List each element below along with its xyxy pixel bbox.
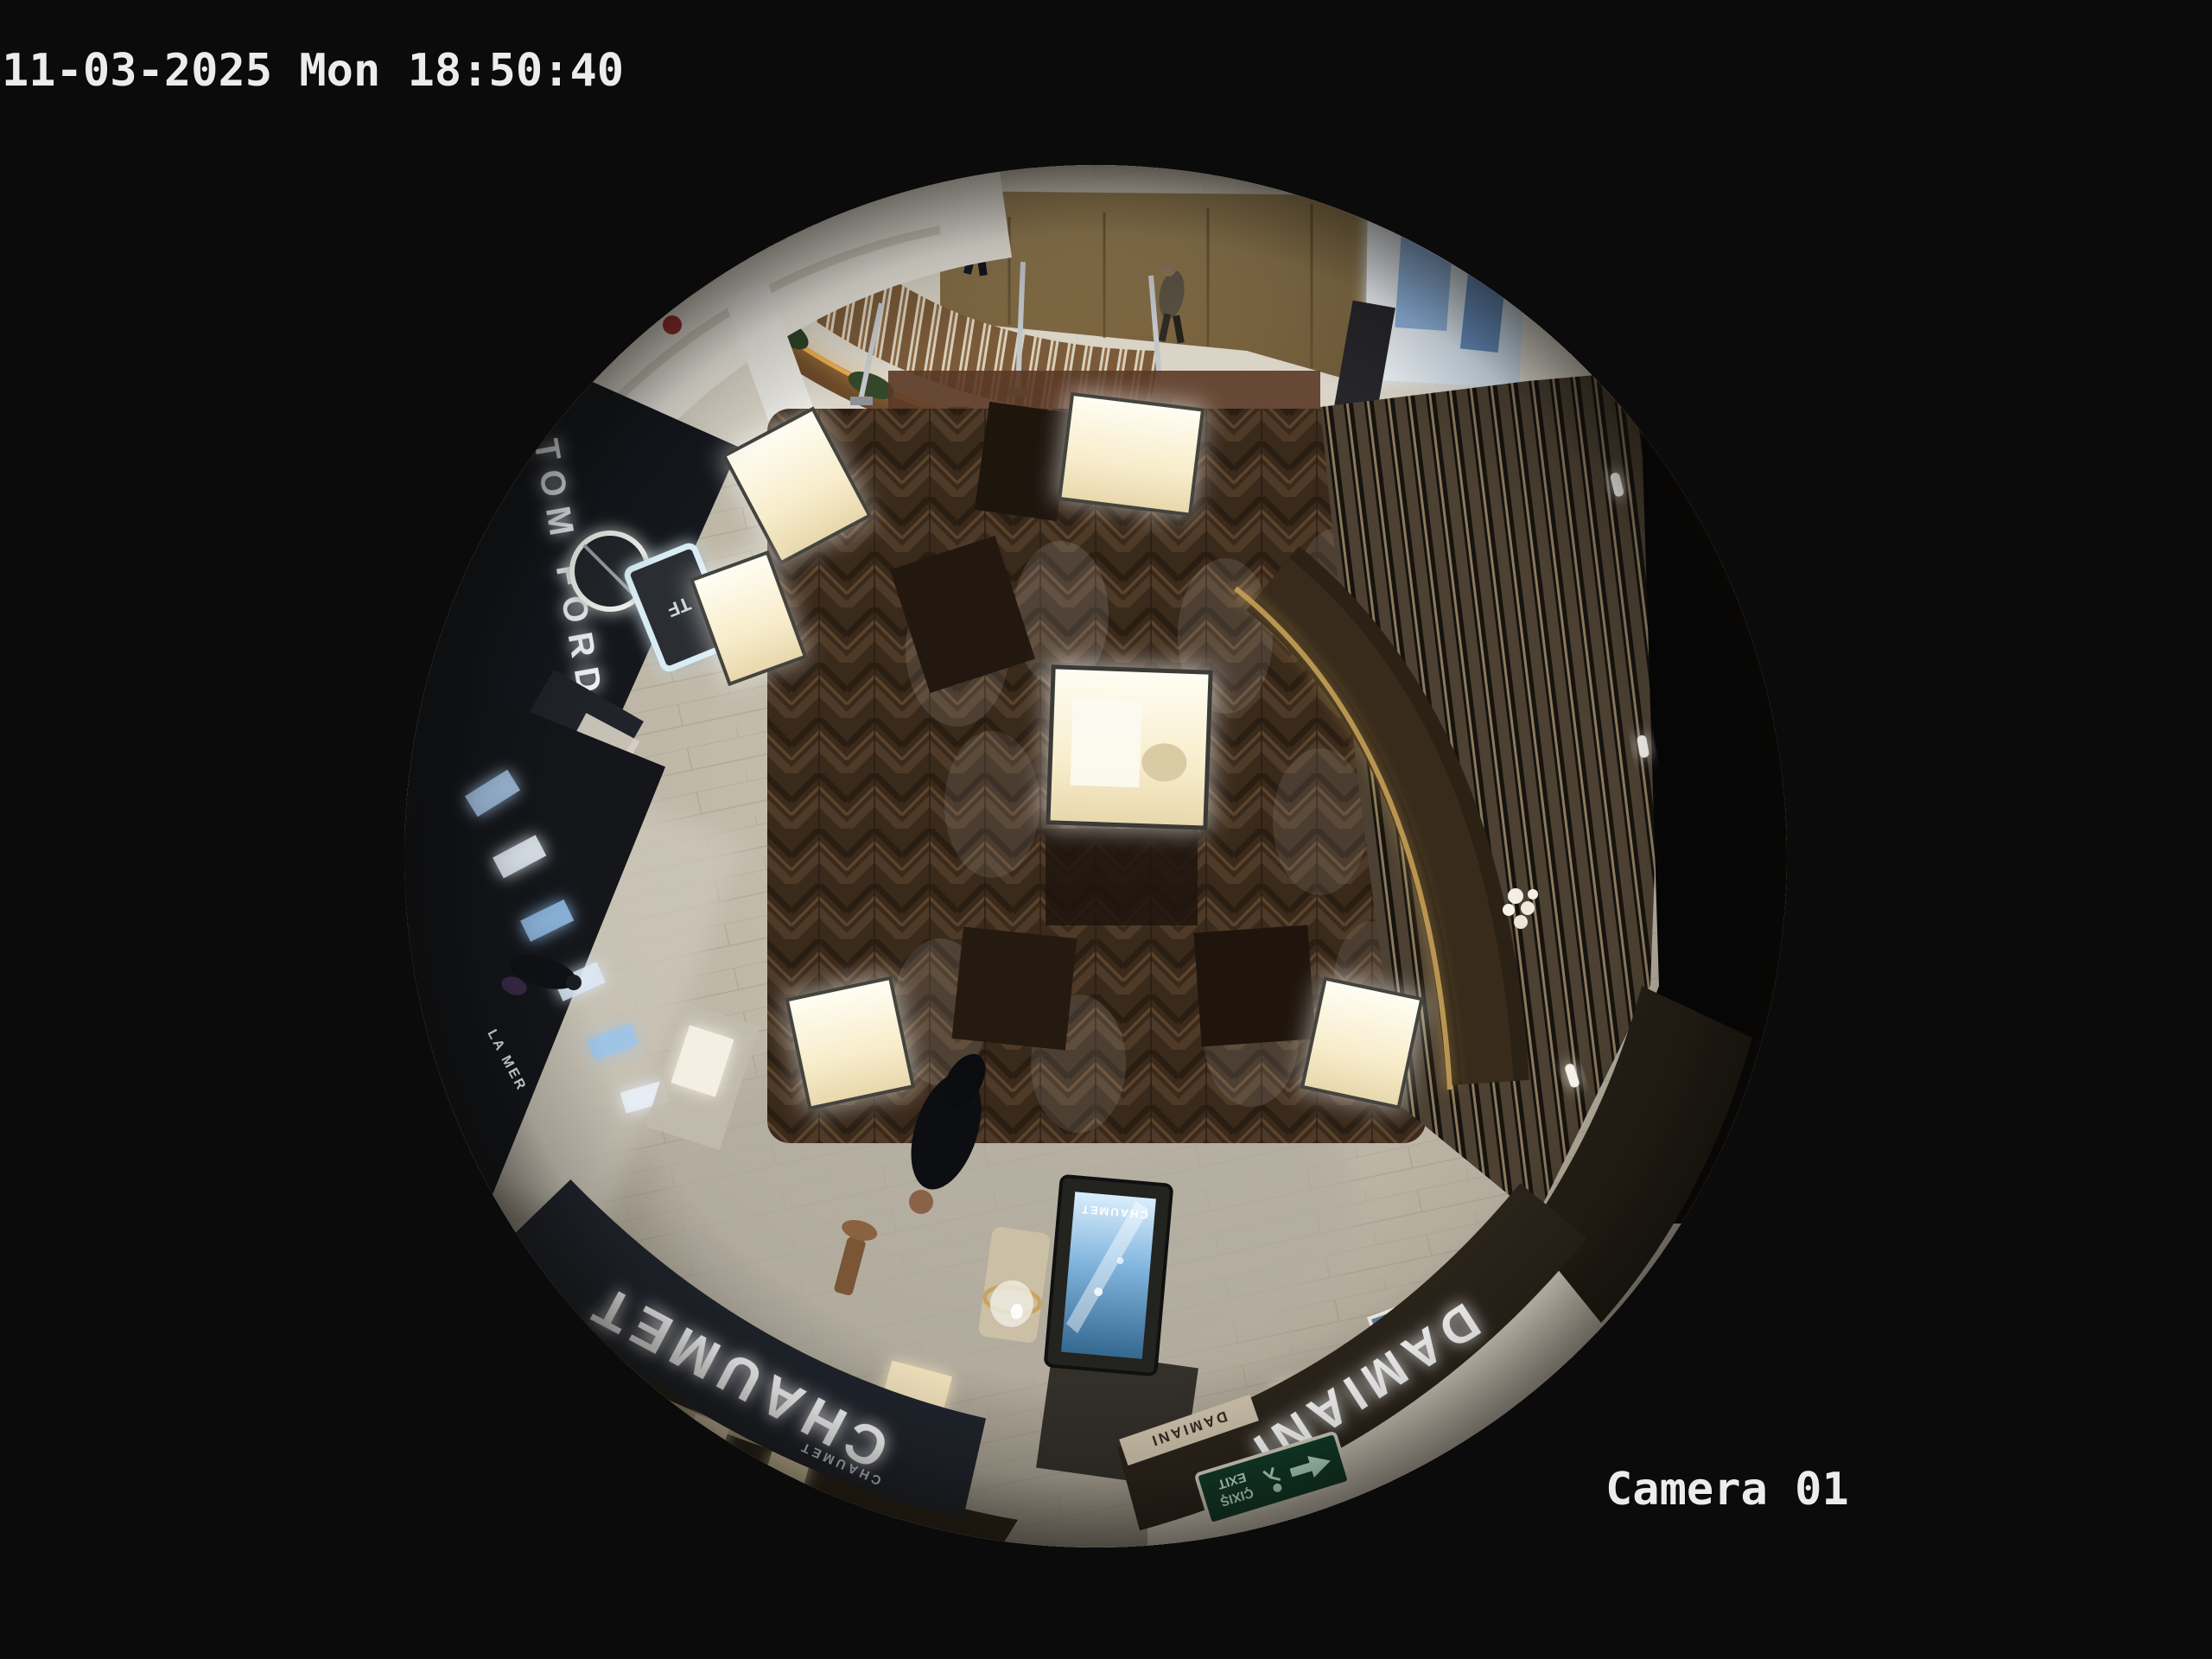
lens-vignette	[404, 165, 1787, 1548]
cctv-frame: 11-03-2025 Mon 18:50:40 Camera 01	[0, 0, 2212, 1659]
store-scene: TOM FORD TF LA MER	[404, 165, 1787, 1548]
camera-label: Camera 01	[1605, 1464, 1849, 1516]
fisheye-view: TOM FORD TF LA MER	[404, 165, 1787, 1548]
timestamp-overlay: 11-03-2025 Mon 18:50:40	[2, 45, 624, 97]
